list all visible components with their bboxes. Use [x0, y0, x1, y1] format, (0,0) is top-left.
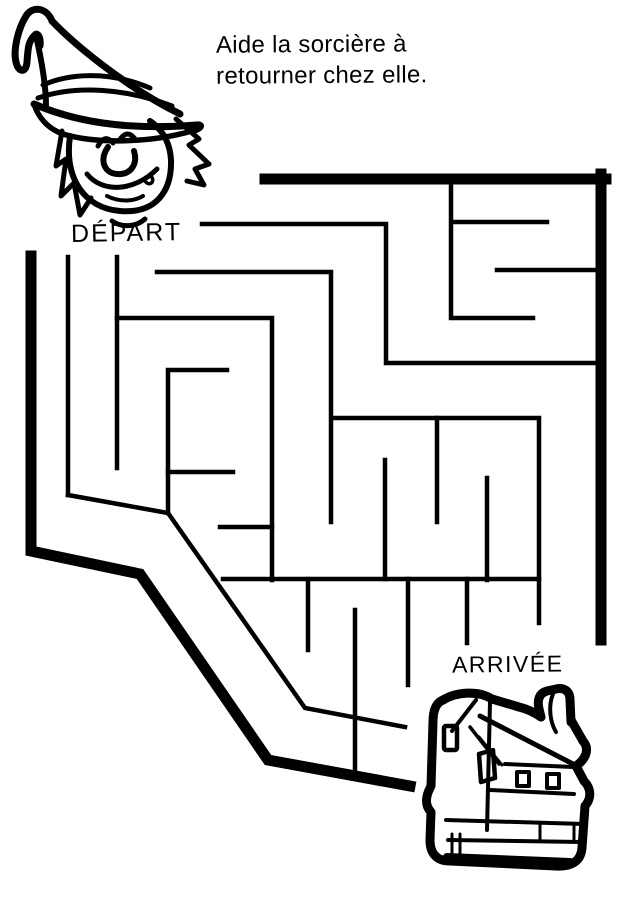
- witch-illustration: [15, 9, 209, 225]
- maze-wall: [451, 184, 533, 318]
- maze-wall: [168, 370, 227, 513]
- maze-wall: [202, 224, 599, 363]
- finish-label: ARRIVÉE: [452, 650, 564, 678]
- maze-wall: [117, 318, 272, 580]
- start-label: DÉPART: [71, 218, 183, 249]
- maze-wall: [157, 272, 331, 522]
- maze-inner-walls: [68, 184, 599, 775]
- house-illustration: [427, 688, 590, 866]
- maze-worksheet-page: Aide la sorcière à retourner chez elle.: [0, 0, 633, 900]
- maze-scene: [0, 0, 633, 900]
